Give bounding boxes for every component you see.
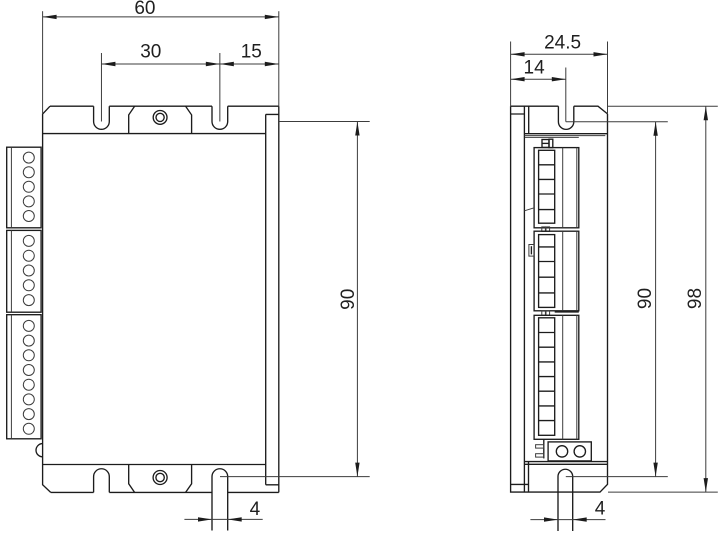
svg-text:60: 60 (134, 0, 155, 19)
svg-text:90: 90 (635, 288, 656, 309)
svg-text:14: 14 (524, 57, 546, 78)
svg-text:15: 15 (241, 41, 262, 62)
svg-text:98: 98 (685, 288, 706, 309)
svg-text:30: 30 (140, 41, 161, 62)
svg-text:4: 4 (250, 499, 261, 520)
svg-text:24.5: 24.5 (544, 33, 581, 54)
svg-text:4: 4 (595, 499, 606, 520)
svg-text:90: 90 (338, 289, 359, 310)
